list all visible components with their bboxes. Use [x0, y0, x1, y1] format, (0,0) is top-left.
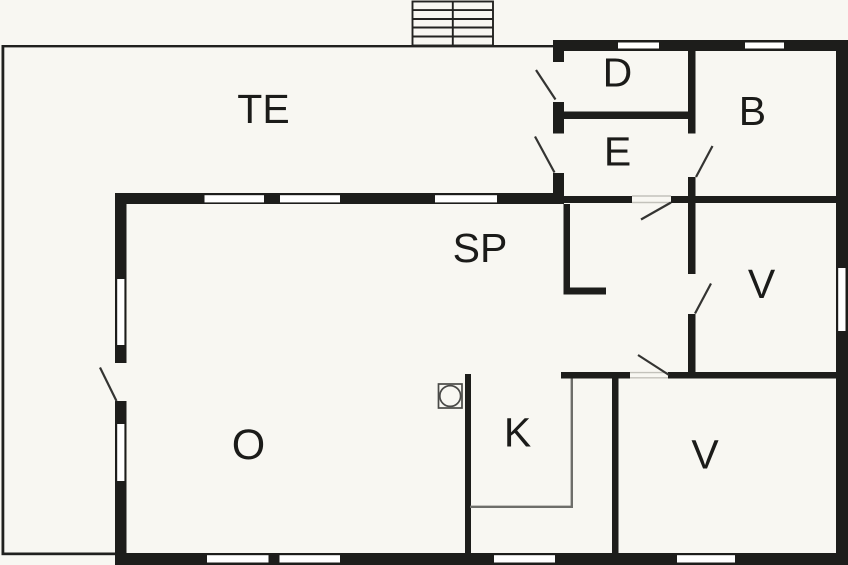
svg-text:O: O	[232, 421, 265, 469]
svg-text:V: V	[691, 432, 719, 478]
svg-text:V: V	[748, 261, 776, 307]
svg-text:D: D	[603, 49, 633, 95]
svg-text:SP: SP	[453, 225, 508, 271]
svg-text:K: K	[504, 410, 531, 456]
svg-text:TE: TE	[237, 86, 289, 132]
svg-text:B: B	[739, 88, 766, 134]
svg-text:E: E	[604, 128, 631, 174]
